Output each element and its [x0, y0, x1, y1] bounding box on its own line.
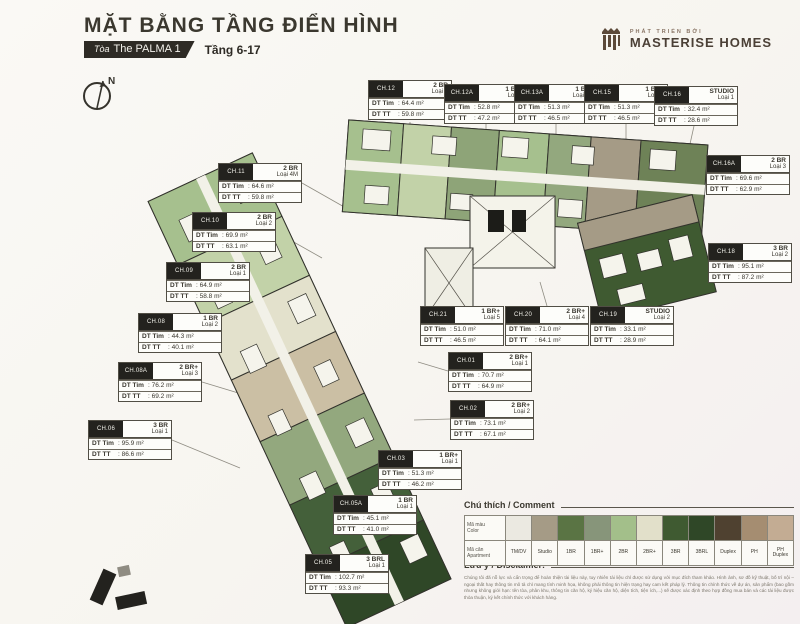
- legend-title-row: Chú thích / Comment: [464, 500, 794, 510]
- unit-type: STUDIO: [628, 308, 670, 315]
- legend-apartment-row-label: Mã cănApartment: [465, 540, 505, 565]
- legend-swatch: [714, 516, 740, 540]
- unit-type: 2 BR: [204, 264, 246, 271]
- unit-type: 2 BR: [256, 165, 298, 172]
- unit-dt-tt-value: 46.5 m²: [544, 115, 570, 122]
- unit-variant: Loại 1: [343, 563, 385, 570]
- legend-swatch: [662, 516, 688, 540]
- unit-variant: Loại 4M: [256, 172, 298, 179]
- legend-item-label: 2BR+: [636, 540, 662, 565]
- unit-variant: Loại 1: [692, 95, 734, 102]
- unit-dt-tim-row: DT Tim95.9 m²: [89, 438, 171, 448]
- legend-title: Chú thích / Comment: [464, 500, 555, 510]
- legend-item-label: 3BR: [662, 540, 688, 565]
- unit-dt-tim-row: DT Tim102.7 m²: [306, 572, 388, 582]
- unit-dt-tim-row: DT Tim32.4 m²: [655, 104, 737, 114]
- unit-dt-tt-value: 47.2 m²: [474, 115, 500, 122]
- unit-dt-tim-value: 51.3 m²: [614, 104, 640, 111]
- unit-variant: Loại 2: [746, 252, 788, 259]
- unit-label: CH.053 BRLLoại 1DT Tim102.7 m²DT TT93.3 …: [305, 554, 389, 594]
- unit-dt-tt-row: DT TT86.6 m²: [89, 449, 171, 459]
- unit-dt-tim-value: 45.1 m²: [363, 515, 389, 522]
- unit-dt-tim-label: DT Tim: [452, 372, 478, 379]
- unit-dt-tt-value: 28.6 m²: [684, 117, 710, 124]
- unit-dt-tt-row: DT TT64.1 m²: [506, 335, 588, 345]
- unit-dt-tim-value: 51.3 m²: [544, 104, 570, 111]
- legend-color-row-label: Mã màuColor: [465, 516, 505, 540]
- unit-variant: Loại 1: [204, 271, 246, 278]
- unit-dt-tim-label: DT Tim: [122, 382, 148, 389]
- unit-dt-tt-row: DT TT67.1 m²: [451, 429, 533, 439]
- unit-dt-tt-value: 28.9 m²: [620, 337, 646, 344]
- unit-dt-tt-label: DT TT: [518, 115, 544, 122]
- unit-dt-tim-label: DT Tim: [454, 420, 480, 427]
- unit-label: CH.102 BRLoại 2DT Tim69.9 m²DT TT63.1 m²: [192, 212, 276, 252]
- unit-dt-tt-value: 41.0 m²: [363, 526, 389, 533]
- unit-dt-tt-row: DT TT59.8 m²: [369, 109, 451, 119]
- unit-dt-tt-row: DT TT46.2 m²: [379, 479, 461, 489]
- unit-code: CH.20: [506, 307, 540, 323]
- unit-dt-tim-label: DT Tim: [372, 100, 398, 107]
- unit-dt-tim-label: DT Tim: [337, 515, 363, 522]
- unit-dt-tt-row: DT TT58.8 m²: [167, 291, 249, 301]
- unit-dt-tt-label: DT TT: [372, 111, 398, 118]
- unit-code: CH.05: [306, 555, 340, 571]
- unit-dt-tt-label: DT TT: [454, 431, 480, 438]
- unit-label: CH.092 BRLoại 1DT Tim64.9 m²DT TT58.8 m²: [166, 262, 250, 302]
- unit-dt-tt-label: DT TT: [92, 451, 118, 458]
- legend-swatch: [531, 516, 557, 540]
- unit-dt-tt-label: DT TT: [337, 526, 363, 533]
- unit-dt-tt-label: DT TT: [170, 293, 196, 300]
- unit-code: CH.05A: [334, 496, 368, 512]
- unit-dt-tim-label: DT Tim: [588, 104, 614, 111]
- unit-dt-tt-label: DT TT: [309, 585, 335, 592]
- unit-dt-tim-row: DT Tim44.3 m²: [139, 331, 221, 341]
- unit-dt-tt-row: DT TT62.9 m²: [707, 184, 789, 194]
- legend: Chú thích / Comment Mã màuColor Mã cănAp…: [464, 500, 794, 566]
- unit-dt-tim-label: DT Tim: [222, 183, 248, 190]
- legend-item-label: 2BR: [610, 540, 636, 565]
- unit-label: CH.012 BR+Loại 1DT Tim70.7 m²DT TT64.9 m…: [448, 352, 532, 392]
- legend-swatch: [741, 516, 767, 540]
- unit-dt-tim-label: DT Tim: [594, 326, 620, 333]
- unit-label: CH.202 BR+Loại 4DT Tim71.0 m²DT TT64.1 m…: [505, 306, 589, 346]
- unit-dt-tim-value: 64.9 m²: [196, 282, 222, 289]
- unit-label: CH.19STUDIOLoại 2DT Tim33.1 m²DT TT28.9 …: [590, 306, 674, 346]
- unit-dt-tim-row: DT Tim33.1 m²: [591, 324, 673, 334]
- unit-variant: Loại 4: [406, 89, 448, 96]
- unit-dt-tt-value: 59.8 m²: [248, 194, 274, 201]
- unit-type: 2 BR: [230, 214, 272, 221]
- unit-dt-tim-value: 102.7 m²: [335, 574, 364, 581]
- unit-dt-tim-value: 76.2 m²: [148, 382, 174, 389]
- unit-type: STUDIO: [692, 88, 734, 95]
- unit-code: CH.03: [379, 451, 413, 467]
- unit-dt-tim-value: 69.9 m²: [222, 232, 248, 239]
- unit-dt-tim-value: 51.3 m²: [408, 470, 434, 477]
- unit-dt-tim-label: DT Tim: [382, 470, 408, 477]
- unit-dt-tt-label: DT TT: [588, 115, 614, 122]
- unit-dt-tim-label: DT Tim: [309, 574, 335, 581]
- unit-code: CH.19: [591, 307, 625, 323]
- legend-item-label: 3BRL: [688, 540, 714, 565]
- unit-dt-tim-row: DT Tim69.6 m²: [707, 173, 789, 183]
- unit-code: CH.16A: [707, 156, 741, 172]
- unit-variant: Loại 1: [371, 504, 413, 511]
- unit-dt-tt-value: 86.6 m²: [118, 451, 144, 458]
- unit-dt-tim-row: DT Tim76.2 m²: [119, 380, 201, 390]
- unit-dt-tim-label: DT Tim: [658, 106, 684, 113]
- unit-code: CH.08: [139, 314, 173, 330]
- unit-dt-tt-row: DT TT69.2 m²: [119, 391, 201, 401]
- unit-dt-tt-value: 59.8 m²: [398, 111, 424, 118]
- unit-dt-tim-row: DT Tim64.4 m²: [369, 98, 451, 108]
- unit-dt-tim-label: DT Tim: [509, 326, 535, 333]
- unit-code: CH.13A: [515, 85, 549, 101]
- unit-code: CH.16: [655, 87, 689, 103]
- unit-dt-tt-row: DT TT40.1 m²: [139, 342, 221, 352]
- unit-dt-tt-value: 64.9 m²: [478, 383, 504, 390]
- unit-dt-tim-label: DT Tim: [170, 282, 196, 289]
- unit-dt-tim-row: DT Tim70.7 m²: [449, 370, 531, 380]
- legend-table: Mã màuColor Mã cănApartmentTM/DVStudio1B…: [464, 515, 794, 566]
- unit-dt-tt-label: DT TT: [424, 337, 450, 344]
- unit-dt-tim-value: 95.1 m²: [738, 263, 764, 270]
- unit-dt-tim-value: 52.8 m²: [474, 104, 500, 111]
- unit-type: 1 BR+: [416, 452, 458, 459]
- unit-dt-tt-value: 93.3 m²: [335, 585, 361, 592]
- unit-type: 3 BR: [126, 422, 168, 429]
- unit-code: CH.10: [193, 213, 227, 229]
- unit-dt-tt-value: 46.5 m²: [614, 115, 640, 122]
- legend-swatch: [584, 516, 610, 540]
- unit-code: CH.12A: [445, 85, 479, 101]
- unit-variant: Loại 1: [486, 361, 528, 368]
- unit-dt-tt-row: DT TT46.5 m²: [421, 335, 503, 345]
- unit-dt-tim-value: 69.6 m²: [736, 175, 762, 182]
- legend-swatch: [557, 516, 583, 540]
- legend-swatch: [610, 516, 636, 540]
- unit-dt-tim-label: DT Tim: [712, 263, 738, 270]
- unit-variant: Loại 3: [744, 164, 786, 171]
- unit-dt-tt-value: 46.2 m²: [408, 481, 434, 488]
- unit-dt-tt-value: 40.1 m²: [168, 344, 194, 351]
- legend-swatch: [688, 516, 714, 540]
- unit-dt-tt-label: DT TT: [122, 393, 148, 400]
- unit-dt-tim-label: DT Tim: [142, 333, 168, 340]
- unit-type: 1 BR: [371, 497, 413, 504]
- unit-dt-tim-row: DT Tim71.0 m²: [506, 324, 588, 334]
- unit-dt-tt-label: DT TT: [142, 344, 168, 351]
- unit-dt-tim-row: DT Tim51.3 m²: [379, 468, 461, 478]
- unit-dt-tt-row: DT TT41.0 m²: [334, 524, 416, 534]
- unit-type: 2 BR+: [156, 364, 198, 371]
- unit-dt-tim-row: DT Tim73.1 m²: [451, 418, 533, 428]
- unit-dt-tt-value: 62.9 m²: [736, 186, 762, 193]
- unit-dt-tim-value: 64.6 m²: [248, 183, 274, 190]
- unit-code: CH.11: [219, 164, 253, 180]
- unit-dt-tt-value: 63.1 m²: [222, 243, 248, 250]
- unit-dt-tt-label: DT TT: [196, 243, 222, 250]
- unit-label: CH.183 BRLoại 2DT Tim95.1 m²DT TT87.2 m²: [708, 243, 792, 283]
- unit-code: CH.01: [449, 353, 483, 369]
- unit-dt-tim-value: 51.0 m²: [450, 326, 476, 333]
- unit-dt-tim-row: DT Tim69.9 m²: [193, 230, 275, 240]
- legend-swatch: [636, 516, 662, 540]
- floorplan-page: MẶT BẰNG TẦNG ĐIỂN HÌNH TòaThe PALMA 1 T…: [0, 0, 800, 624]
- unit-dt-tt-row: DT TT87.2 m²: [709, 272, 791, 282]
- unit-type: 2 BR+: [486, 354, 528, 361]
- unit-dt-tim-label: DT Tim: [92, 440, 118, 447]
- unit-dt-tt-label: DT TT: [710, 186, 736, 193]
- key-plan-icon: [88, 560, 158, 622]
- unit-variant: Loại 4: [543, 315, 585, 322]
- unit-dt-tt-label: DT TT: [594, 337, 620, 344]
- unit-type: 1 BR+: [458, 308, 500, 315]
- unit-type: 3 BR: [746, 245, 788, 252]
- unit-type: 2 BR+: [543, 308, 585, 315]
- compass-icon: N: [78, 72, 124, 116]
- unit-dt-tt-row: DT TT93.3 m²: [306, 583, 388, 593]
- unit-dt-tt-value: 58.8 m²: [196, 293, 222, 300]
- unit-dt-tim-row: DT Tim51.0 m²: [421, 324, 503, 334]
- unit-variant: Loại 1: [416, 459, 458, 466]
- unit-dt-tim-value: 73.1 m²: [480, 420, 506, 427]
- unit-variant: Loại 2: [230, 221, 272, 228]
- legend-item-label: 1BR: [557, 540, 583, 565]
- unit-dt-tt-value: 67.1 m²: [480, 431, 506, 438]
- legend-item-label: Studio: [531, 540, 557, 565]
- unit-dt-tt-label: DT TT: [712, 274, 738, 281]
- unit-label: CH.081 BRLoại 2DT Tim44.3 m²DT TT40.1 m²: [138, 313, 222, 353]
- unit-dt-tt-row: DT TT28.6 m²: [655, 115, 737, 125]
- legend-item-label: PH Duplex: [767, 540, 793, 565]
- unit-dt-tim-value: 70.7 m²: [478, 372, 504, 379]
- unit-label: CH.16A2 BRLoại 3DT Tim69.6 m²DT TT62.9 m…: [706, 155, 790, 195]
- unit-dt-tim-label: DT Tim: [710, 175, 736, 182]
- unit-dt-tim-value: 71.0 m²: [535, 326, 561, 333]
- legend-item-label: 1BR+: [584, 540, 610, 565]
- unit-variant: Loại 5: [458, 315, 500, 322]
- unit-variant: Loại 2: [628, 315, 670, 322]
- unit-label: CH.031 BR+Loại 1DT Tim51.3 m²DT TT46.2 m…: [378, 450, 462, 490]
- unit-dt-tim-label: DT Tim: [196, 232, 222, 239]
- unit-variant: Loại 3: [156, 371, 198, 378]
- unit-dt-tt-value: 69.2 m²: [148, 393, 174, 400]
- unit-dt-tt-value: 64.1 m²: [535, 337, 561, 344]
- unit-dt-tt-label: DT TT: [452, 383, 478, 390]
- unit-dt-tim-label: DT Tim: [424, 326, 450, 333]
- unit-label: CH.122 BRLoại 4DT Tim64.4 m²DT TT59.8 m²: [368, 80, 452, 120]
- unit-dt-tim-row: DT Tim45.1 m²: [334, 513, 416, 523]
- unit-code: CH.06: [89, 421, 123, 437]
- unit-dt-tim-row: DT Tim95.1 m²: [709, 261, 791, 271]
- svg-text:N: N: [108, 76, 115, 87]
- unit-code: CH.18: [709, 244, 743, 260]
- unit-type: 3 BRL: [343, 556, 385, 563]
- unit-dt-tim-value: 33.1 m²: [620, 326, 646, 333]
- unit-dt-tt-row: DT TT63.1 m²: [193, 241, 275, 251]
- unit-dt-tt-row: DT TT64.9 m²: [449, 381, 531, 391]
- unit-dt-tim-row: DT Tim64.9 m²: [167, 280, 249, 290]
- legend-swatch: [767, 516, 793, 540]
- unit-code: CH.09: [167, 263, 201, 279]
- unit-label: CH.05A1 BRLoại 1DT Tim45.1 m²DT TT41.0 m…: [333, 495, 417, 535]
- unit-label: CH.16STUDIOLoại 1DT Tim32.4 m²DT TT28.6 …: [654, 86, 738, 126]
- unit-type: 2 BR: [406, 82, 448, 89]
- legend-swatch: [505, 516, 531, 540]
- unit-dt-tim-value: 64.4 m²: [398, 100, 424, 107]
- unit-dt-tt-label: DT TT: [658, 117, 684, 124]
- unit-dt-tim-value: 95.9 m²: [118, 440, 144, 447]
- unit-dt-tt-label: DT TT: [509, 337, 535, 344]
- unit-dt-tt-row: DT TT28.9 m²: [591, 335, 673, 345]
- unit-label: CH.211 BR+Loại 5DT Tim51.0 m²DT TT46.5 m…: [420, 306, 504, 346]
- unit-dt-tt-label: DT TT: [222, 194, 248, 201]
- unit-variant: Loại 2: [488, 409, 530, 416]
- unit-dt-tim-row: DT Tim64.6 m²: [219, 181, 301, 191]
- unit-dt-tim-label: DT Tim: [448, 104, 474, 111]
- unit-label: CH.063 BRLoại 1DT Tim95.9 m²DT TT86.6 m²: [88, 420, 172, 460]
- unit-type: 1 BR: [176, 315, 218, 322]
- unit-label: CH.022 BR+Loại 2DT Tim73.1 m²DT TT67.1 m…: [450, 400, 534, 440]
- unit-label: CH.08A2 BR+Loại 3DT Tim76.2 m²DT TT69.2 …: [118, 362, 202, 402]
- unit-dt-tt-value: 46.5 m²: [450, 337, 476, 344]
- unit-dt-tim-label: DT Tim: [518, 104, 544, 111]
- unit-code: CH.02: [451, 401, 485, 417]
- unit-variant: Loại 1: [126, 429, 168, 436]
- unit-type: 2 BR: [744, 157, 786, 164]
- unit-type: 2 BR+: [488, 402, 530, 409]
- unit-dt-tim-value: 44.3 m²: [168, 333, 194, 340]
- unit-dt-tt-value: 87.2 m²: [738, 274, 764, 281]
- legend-item-label: PH: [741, 540, 767, 565]
- unit-code: CH.15: [585, 85, 619, 101]
- unit-code: CH.12: [369, 81, 403, 97]
- unit-dt-tt-row: DT TT59.8 m²: [219, 192, 301, 202]
- unit-dt-tim-value: 32.4 m²: [684, 106, 710, 113]
- legend-item-label: Duplex: [714, 540, 740, 565]
- unit-code: CH.08A: [119, 363, 153, 379]
- unit-dt-tt-label: DT TT: [382, 481, 408, 488]
- unit-variant: Loại 2: [176, 322, 218, 329]
- legend-title-rule: [561, 507, 795, 508]
- unit-code: CH.21: [421, 307, 455, 323]
- unit-dt-tt-label: DT TT: [448, 115, 474, 122]
- legend-item-label: TM/DV: [505, 540, 531, 565]
- unit-label: CH.112 BRLoại 4MDT Tim64.6 m²DT TT59.8 m…: [218, 163, 302, 203]
